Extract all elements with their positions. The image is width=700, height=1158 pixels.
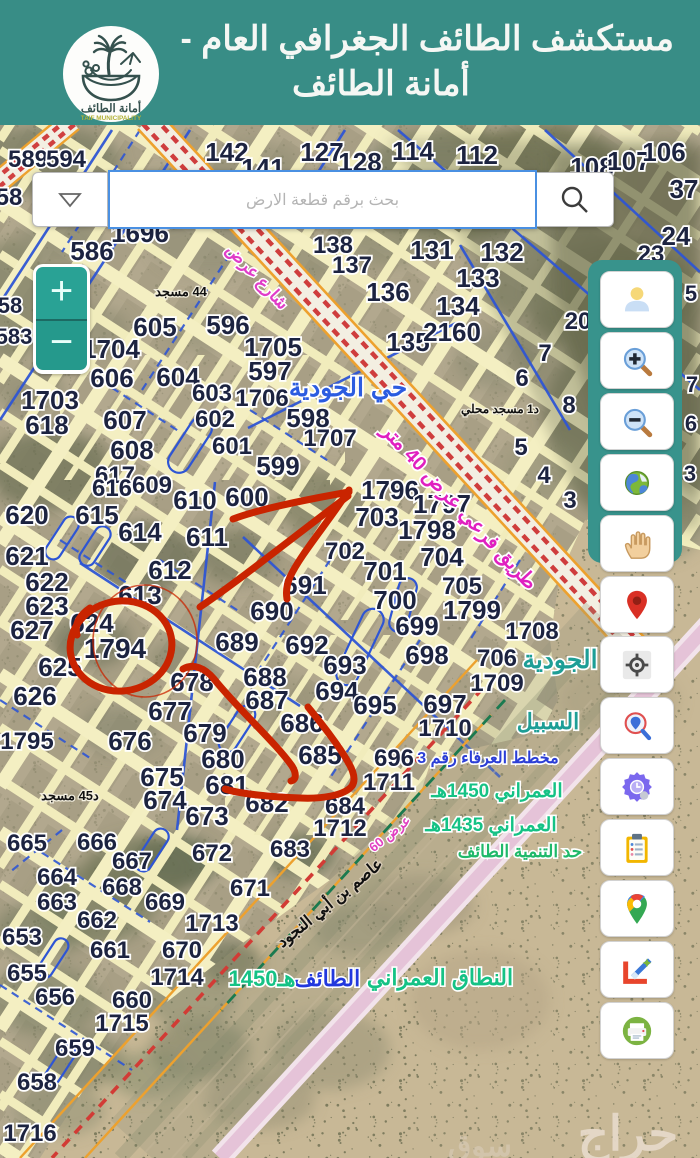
svg-text:1704: 1704: [82, 334, 140, 364]
svg-text:6: 6: [515, 365, 528, 392]
svg-text:العمراني 1450هـ: العمراني 1450هـ: [430, 781, 562, 803]
svg-text:706: 706: [477, 645, 517, 672]
svg-text:616: 616: [92, 475, 132, 502]
svg-text:37: 37: [670, 174, 699, 204]
svg-text:673: 673: [185, 801, 228, 831]
svg-text:3: 3: [684, 461, 696, 486]
svg-text:مخطط العرفاء رقم 3: مخطط العرفاء رقم 3: [417, 750, 558, 768]
svg-text:112: 112: [456, 140, 498, 170]
svg-text:136: 136: [366, 277, 409, 307]
svg-text:594: 594: [46, 146, 87, 173]
svg-text:703: 703: [355, 502, 398, 532]
svg-text:683: 683: [270, 836, 310, 863]
svg-text:662: 662: [77, 907, 117, 934]
svg-text:1713: 1713: [185, 910, 238, 937]
svg-text:620: 620: [5, 500, 48, 530]
svg-text:1715: 1715: [95, 1010, 148, 1037]
svg-text:615: 615: [75, 500, 118, 530]
svg-text:672: 672: [192, 840, 232, 867]
svg-text:سوق: سوق: [448, 1130, 512, 1158]
svg-text:1796: 1796: [361, 475, 419, 505]
svg-text:692: 692: [285, 630, 328, 660]
svg-text:1703: 1703: [21, 385, 79, 415]
svg-text:658: 658: [17, 1069, 57, 1096]
svg-text:1795: 1795: [0, 728, 53, 755]
svg-text:695: 695: [353, 690, 396, 720]
svg-text:586: 586: [70, 236, 113, 266]
svg-text:610: 610: [173, 485, 216, 515]
svg-text:النطاق العمراني: النطاق العمراني: [367, 965, 513, 991]
svg-text:653: 653: [2, 924, 42, 951]
svg-text:1716: 1716: [3, 1120, 56, 1147]
svg-text:حد التنمية الطائف: حد التنمية الطائف: [458, 842, 582, 861]
svg-text:4: 4: [537, 462, 551, 489]
svg-text:106: 106: [642, 137, 685, 167]
svg-text:655: 655: [7, 960, 47, 987]
svg-text:58: 58: [0, 184, 22, 211]
svg-text:608: 608: [110, 435, 153, 465]
svg-text:599: 599: [256, 451, 299, 481]
svg-text:627: 627: [10, 615, 53, 645]
svg-text:626: 626: [13, 681, 56, 711]
svg-text:589: 589: [8, 146, 48, 173]
svg-text:702: 702: [325, 538, 365, 565]
svg-text:606: 606: [90, 363, 133, 393]
svg-text:3: 3: [563, 487, 576, 514]
svg-text:597: 597: [248, 356, 291, 386]
svg-text:1707: 1707: [303, 425, 356, 452]
svg-text:665: 665: [7, 830, 47, 857]
svg-text:670: 670: [162, 937, 202, 964]
svg-text:8: 8: [562, 392, 575, 419]
svg-text:137: 137: [332, 252, 372, 279]
svg-text:669: 669: [145, 889, 185, 916]
svg-text:602: 602: [195, 406, 235, 433]
svg-text:7: 7: [538, 340, 551, 367]
svg-text:614: 614: [118, 517, 162, 547]
svg-text:114: 114: [392, 136, 434, 166]
svg-text:689: 689: [215, 627, 258, 657]
svg-text:TAIF MUNICIPALITY: TAIF MUNICIPALITY: [81, 115, 142, 122]
svg-text:667: 667: [112, 848, 152, 875]
svg-text:609: 609: [132, 472, 172, 499]
svg-text:671: 671: [230, 875, 270, 902]
svg-text:603: 603: [192, 380, 232, 407]
svg-text:1711: 1711: [363, 769, 415, 796]
svg-text:674: 674: [143, 785, 187, 815]
svg-text:131: 131: [410, 235, 453, 265]
svg-text:الجودية: الجودية: [522, 646, 597, 675]
svg-text:6: 6: [685, 411, 697, 436]
svg-text:58: 58: [0, 293, 22, 318]
svg-text:1710: 1710: [418, 715, 471, 742]
svg-text:663: 663: [37, 889, 77, 916]
svg-text:607: 607: [103, 405, 146, 435]
svg-text:الطائف: الطائف: [294, 966, 360, 991]
svg-text:أمانة الطائف: أمانة الطائف: [81, 100, 141, 115]
svg-text:1798: 1798: [398, 515, 456, 545]
svg-text:‫44 مسجد‬: ‫44 مسجد‬: [155, 284, 208, 299]
svg-text:668: 668: [102, 874, 142, 901]
svg-text:133: 133: [456, 263, 499, 293]
svg-text:السبيل: السبيل: [517, 709, 579, 734]
svg-text:704: 704: [420, 542, 464, 572]
svg-text:676: 676: [108, 726, 151, 756]
svg-text:حي الجودية: حي الجودية: [289, 374, 407, 403]
svg-text:1714: 1714: [150, 964, 204, 991]
svg-text:698: 698: [405, 640, 448, 670]
svg-text:659: 659: [55, 1035, 95, 1062]
svg-text:127: 127: [300, 137, 343, 167]
svg-text:611: 611: [186, 522, 228, 552]
svg-text:العمراني 1435هـ: العمراني 1435هـ: [424, 815, 556, 837]
svg-text:‫د45 مسجد‬: ‫د45 مسجد‬: [41, 788, 99, 803]
svg-text:1709: 1709: [470, 670, 523, 697]
svg-text:661: 661: [90, 937, 130, 964]
svg-text:5: 5: [514, 434, 527, 461]
svg-text:1706: 1706: [235, 385, 288, 412]
svg-text:5: 5: [685, 281, 697, 306]
svg-text:699: 699: [395, 611, 438, 641]
svg-text:1712: 1712: [313, 815, 366, 842]
svg-text:656: 656: [35, 984, 75, 1011]
svg-text:1708: 1708: [505, 618, 558, 645]
svg-text:7: 7: [686, 372, 698, 397]
svg-text:1799: 1799: [443, 595, 501, 625]
svg-text:‫د1 مسجد محلي‬: ‫د1 مسجد محلي‬: [461, 402, 539, 417]
svg-text:24: 24: [662, 221, 691, 251]
svg-text:664: 664: [37, 864, 78, 891]
svg-text:601: 601: [212, 433, 252, 460]
svg-text:701: 701: [363, 556, 406, 586]
svg-text:حراج: حراج: [578, 1108, 678, 1158]
svg-text:696: 696: [374, 745, 414, 772]
svg-text:2160: 2160: [423, 317, 481, 347]
svg-text:583: 583: [0, 324, 32, 349]
svg-text:1450هـ: 1450هـ: [229, 966, 296, 991]
